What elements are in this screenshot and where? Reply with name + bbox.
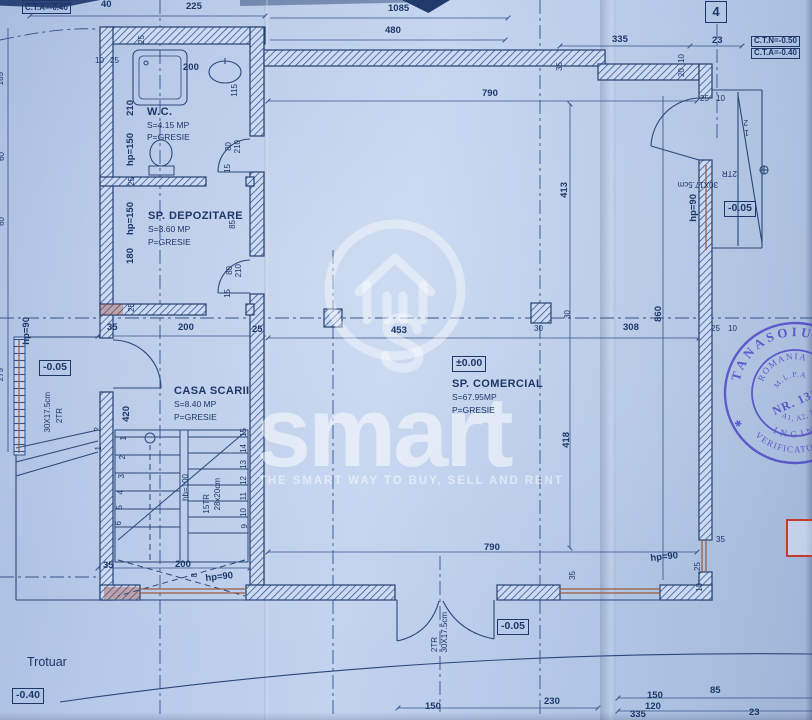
dim-label: 12 (240, 476, 249, 485)
dim-label: 4 (117, 490, 126, 494)
room-area: S=8.40 MP (174, 400, 216, 409)
dim-label: 35 (569, 571, 578, 580)
dim-label: 120 (645, 702, 661, 712)
room-name: CASA SCARII (174, 385, 250, 397)
dim-label: 1 (120, 436, 129, 440)
annotation-layer: C.T.N=-0.50C.T.A=-0.40402251085480433523… (0, 0, 812, 720)
dim-label: 453 (391, 326, 407, 336)
dim-label: 11 (240, 492, 249, 500)
dim-label: 28x20cm (214, 478, 223, 510)
dim-label: 275 (0, 368, 6, 381)
dim-label: 23 (749, 708, 760, 718)
dim-label: 30 (564, 310, 573, 319)
room-floor: P=GRESIE (147, 133, 190, 142)
dim-label: 25 (694, 562, 703, 571)
dim-label: 225 (186, 2, 202, 12)
dim-label: 30X17.5cm (678, 179, 718, 188)
dim-label: 210 (235, 264, 244, 277)
dim-label: 30 (534, 325, 543, 334)
room-area: S=4.15 MP (147, 121, 189, 130)
dim-label: 150 (425, 702, 441, 712)
dim-label: 9 (241, 524, 250, 528)
dim-label: 10 (240, 508, 249, 517)
dim-label: 8 (191, 573, 200, 577)
dim-label: 3 (118, 474, 127, 478)
room-name: W.C. (147, 106, 172, 118)
dim-label: 335 (612, 35, 628, 45)
dim-label: 30X17.5cm (441, 612, 450, 652)
level-marker: C.T.A=-0.40 (751, 48, 800, 59)
dim-label: 35 (103, 561, 114, 571)
room-name: SP. COMERCIAL (452, 378, 543, 390)
dim-label: 200 (183, 63, 199, 73)
level-marker: -0.05 (39, 360, 71, 376)
dim-label: hp=90 (650, 551, 679, 564)
dim-label: 2TR (722, 168, 737, 177)
dim-label: 180 (126, 248, 136, 264)
dim-label: 210 (234, 140, 243, 153)
dim-label: 25 (700, 95, 709, 104)
dim-label: 85 (229, 220, 238, 229)
dim-label: 35 (716, 536, 725, 545)
level-marker: ±0.00 (452, 356, 486, 372)
dim-label: hp=90 (205, 571, 234, 584)
dim-label: 10 (716, 95, 725, 104)
dim-label: 1 (95, 446, 104, 450)
dim-label: 115 (231, 84, 240, 97)
dim-label: 5 (116, 505, 125, 509)
level-marker: -0.05 (724, 201, 756, 217)
dim-label: 230 (544, 697, 560, 707)
dim-label: 15TR (203, 494, 212, 514)
dim-label: 25 (128, 177, 137, 186)
dim-label: 25 (138, 35, 147, 44)
dim-label: hp=150 (126, 133, 136, 166)
room-floor: P=GRESIE (452, 406, 495, 415)
dim-label: 14 (240, 444, 249, 453)
dim-label: 40 (101, 0, 112, 10)
dim-label: 15 (224, 164, 233, 173)
room-floor: P=GRESIE (174, 413, 217, 422)
dim-label: 25 (711, 325, 720, 334)
dim-label: 1 (745, 127, 749, 136)
level-marker: C.T.N=-0.50 (22, 0, 71, 1)
dim-label: 200 (178, 323, 194, 333)
dim-label: 10 (696, 583, 705, 592)
dim-label: 10 (728, 325, 737, 334)
dim-label: hb=100 (182, 474, 191, 501)
dim-label: 60 (0, 152, 7, 161)
dim-label: 418 (562, 432, 572, 448)
dim-label: 2TR (431, 637, 440, 652)
room-floor: P=GRESIE (148, 238, 191, 247)
dim-label: 25 (110, 57, 119, 66)
dim-label: 60 (0, 217, 7, 226)
room-area: S=67.95MP (452, 393, 497, 402)
grid-axis-bubble: 4 (705, 1, 727, 23)
dim-label: 15 (224, 289, 233, 298)
level-marker: C.T.N=-0.50 (751, 36, 800, 47)
dim-label: 185 (0, 72, 6, 85)
dim-label: 13 (240, 460, 249, 469)
dim-label: 25 (128, 303, 137, 312)
dim-label: 335 (630, 710, 646, 720)
dim-label: 85 (710, 686, 721, 696)
dim-label: 15 (240, 428, 249, 437)
dim-label: 2 (94, 427, 103, 431)
dim-label: hp=150 (126, 202, 136, 235)
dim-label: 23 (712, 36, 723, 46)
dim-label: 480 (385, 26, 401, 36)
dim-label: 413 (560, 182, 570, 198)
dim-label: hp=90 (22, 317, 32, 345)
dim-label: hp=90 (689, 194, 699, 222)
dim-label: 20 (678, 68, 687, 77)
dim-label: 10 (678, 54, 687, 63)
dim-label: 860 (654, 306, 664, 322)
level-marker: C.T.A=-0.40 (22, 3, 71, 14)
dim-label: 25 (252, 325, 263, 335)
dim-label: 30X17.5cm (44, 392, 53, 432)
room-area: S=3.60 MP (148, 225, 190, 234)
dim-label: 35 (107, 323, 118, 333)
dim-label: 35 (556, 62, 565, 71)
sidewalk-label: Trotuar (27, 656, 67, 670)
blueprint-photo: smart THE SMART WAY TO BUY, SELL AND REN… (0, 0, 812, 720)
dim-label: 790 (484, 543, 500, 553)
dim-label: 2 (119, 455, 128, 459)
dim-label: 200 (175, 560, 191, 570)
dim-label: 2TR (56, 408, 65, 423)
dim-label: 1085 (388, 4, 409, 14)
dim-label: 150 (647, 691, 663, 701)
dim-label: 6 (115, 521, 124, 525)
dim-label: 790 (482, 89, 498, 99)
dim-label: 308 (623, 323, 639, 333)
level-marker: -0.05 (497, 619, 529, 635)
dim-label: 210 (126, 100, 136, 116)
dim-label: 420 (122, 406, 132, 422)
level-marker: -0.40 (12, 688, 44, 704)
dim-label: 2 (744, 117, 748, 126)
dim-label: 10 (95, 57, 104, 66)
